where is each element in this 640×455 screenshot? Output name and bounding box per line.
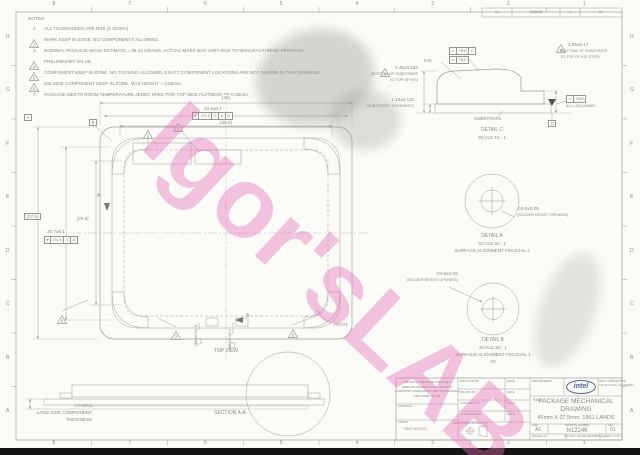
scale-value: SCALE: 2:1 [532,435,548,438]
zone-row: G [630,88,634,94]
zone-col: 5 [280,2,283,8]
note-text: PACKAGE MEETS ROOM TEMPERATURE JEDEC SPE… [44,92,249,97]
rev-value: 01 [610,428,616,434]
kiz-flag: 5 [288,325,298,334]
zone-row: F [630,142,633,148]
strip-number: N12246 [530,10,542,14]
fcf-detail-c-2: ▱TBD [449,56,469,64]
zone-col: 1 [583,441,586,447]
substrate-label: SUBSTRATE [474,116,501,121]
dim-substrate: 1.16±0.115 [391,97,414,102]
note-num: 7. [33,92,37,97]
note-text: ALL TOLERANCES ARE RSS (4 SIGMA). [44,26,130,31]
zone-col: 1 [583,2,586,8]
zone-row: B [6,356,9,362]
drawing-geometry [0,0,640,455]
projection-label: THIRD ANGLE PROJECTION [453,423,488,426]
fcf-detail-c-1: ▱TBDC [449,47,476,55]
lands-label: ALL LGA LANDS [566,104,595,108]
note-flag: 2 [29,35,39,44]
see-detail-b: SEE DETAIL B [195,325,199,346]
zone-col: 7 [128,2,131,8]
note-text: DIE SIDE COMPONENT KEEP IN ZONE. MAX HEI… [44,81,182,86]
section-arrow-label: A [246,314,249,320]
approval-date-label: DATE [507,391,515,394]
pin1-label: PIN #1 [334,322,348,327]
zone-col: 3 [431,2,434,8]
zone-col: 8 [53,2,56,8]
note-text: MARK KEEP IN ZONE. NO COMPONENTS ALLOWED… [44,37,159,42]
top-view-caption: TOP VIEW [214,349,238,355]
address-line: SANTA CLARA, CALIFORNIA [599,385,634,388]
zone-col: 2 [507,2,510,8]
zone-col: 7 [128,441,131,447]
zone-row: C [6,302,10,308]
detail-c-scale: SCALE 10 : 1 [478,135,506,140]
dim-substrate-note: (SUBSTRATE THICKNESS) [366,104,414,108]
sheet-value: SHEET 1 OF 1 [602,435,622,438]
intel-logo: intel [566,380,596,394]
approval-label: DRAWN BY [460,391,476,394]
section-callout: LAND SIDE COMPONENT [37,410,92,415]
dim-step: 2.66±0.17 [568,42,588,47]
detail-c-caption: DETAIL C [481,128,503,134]
zone-row: F [6,142,9,148]
ihs-label: IHS [424,58,432,63]
prelim-flag: 4 [556,40,566,49]
detail-b-qty: 2X [490,359,496,364]
size-value: A1 [535,428,541,434]
dim-ihs: 4.46±0.154 [395,65,418,70]
datum-a: A [24,114,32,121]
note-flag: 4 [29,57,39,66]
zone-col: 5 [280,441,283,447]
section-arrow-label: A [97,194,100,200]
section-callout: THICKNESS [66,417,92,422]
section-callout: 0.6 MAX [74,403,92,408]
dim-37-5: (37.5) [24,213,41,220]
dim-ihs-note: (BOTTOM OF SUBSTRATE [371,72,418,76]
drawing-sheet: Igor'sLAB 8 7 6 5 4 3 2 1 8 7 6 5 4 3 2 … [0,0,640,455]
strip-sheet: 1 [569,10,571,14]
dim-45: (45) [221,95,231,100]
zone-row: A [6,409,9,415]
see-detail-a: SEE DETAIL A [229,329,233,350]
dim-ihs-note: TO TOP OF IHS) [389,78,418,82]
zone-col: 8 [53,441,56,447]
section-caption: SECTION A-A [214,411,246,417]
dim-30-7: 30.7±0.1 [46,229,66,234]
fcf-height: ⌖∅0.5CA [44,236,78,244]
detail-b-note: SURFACE ALIGNMENT FIDUCIAL 1 [455,352,530,357]
approval-date-label: DATE [507,402,515,405]
finish-label: FINISH [398,421,408,424]
datum-b: B [89,119,97,126]
approval-label: APPROVED BY [460,413,482,416]
approval-label: DRAFTED BY [460,380,479,383]
zone-row: G [6,88,10,94]
note-num: 3. [33,48,37,53]
detail-a-scale: SCALE 50 : 1 [478,241,506,246]
approval-label: CHECKED BY [460,402,480,405]
zone-col: 2 [507,441,510,447]
zone-col: 3 [431,441,434,447]
no-scale-note: DO NOT SCALE DRAWING [564,435,602,438]
kiz-flag: 5 [173,119,183,128]
notes-title: NOTES: [28,16,45,21]
detail-a-dim-note: (SOLDER RESIST OPENING) [517,213,568,217]
detail-b-dim: ∅0.6±0.05 [436,271,458,276]
zone-col: 6 [204,2,207,8]
approval-date-label: DATE [507,413,515,416]
zone-row: E [630,195,633,201]
note-text: PRELIMINARY VALUE. [44,59,92,64]
zone-row: C [630,302,634,308]
drawing-title: DRAWING [560,406,591,413]
fcf-width: ⌖∅0.5CAB [192,112,233,120]
zone-row: E [6,195,9,201]
dim-38: (38.0) [219,120,233,125]
zone-row: H [630,35,634,41]
approval-date-label: DATE [507,380,515,383]
strip-size: A1 [495,10,499,14]
spec-note: PER ASME Y14.5M [414,395,440,398]
material-label: MATERIAL [398,405,413,408]
drawing-title: PACKAGE MECHANICAL [538,398,613,405]
detail-a-caption: DETAIL A [481,234,502,240]
note-text: NOMINAL PACKAGE MASS ESTIMATE = 36.14 GR… [44,48,304,53]
department-label: DEPARTMENT [532,380,552,383]
zone-col: 4 [356,441,359,447]
note-flag: 6 [29,79,39,88]
finish-value: SEE NOTES [404,427,427,432]
detail-a-note: SURFACE ALIGNMENT FIDUCIAL 2 [454,248,529,253]
zone-col: 6 [204,441,207,447]
kiz-flag: 2 [171,327,181,336]
note-text: COMPONENT KEEP IN ZONE. NO TOOLING ALLOW… [44,70,321,75]
dim-42-5: 42.5±0.1 [203,106,223,111]
dim-25-5: [25.5] [76,216,90,221]
dim-step-note: TO TOP OF IHS STEP) [560,55,600,59]
zone-row: H [6,35,10,41]
fcf-lands: ▱TBD [566,95,586,103]
zone-col: 4 [356,2,359,8]
dim-step-note: (BOTTOM OF SUBSTRATE [560,49,607,53]
zone-row: A [630,409,633,415]
kiz-flag: 2 [143,126,153,135]
strip-rev: 01 [599,10,603,14]
zone-row: D [630,249,634,255]
detail-b-dim-note: (SOLDER RESIST OPENING) [407,278,458,282]
note-num: 1. [33,26,37,31]
zone-row: B [630,356,633,362]
datum-c: C [548,120,556,127]
photo-edge [0,448,640,455]
detail-b-scale: SCALE 50 : 1 [479,345,507,350]
detail-b-caption: DETAIL B [482,338,504,344]
zone-row: D [6,249,10,255]
detail-a-dim: ∅0.5±0.05 [517,206,539,211]
kiz-flag: 6 [57,311,67,320]
note-flag: 5 [29,68,39,77]
drawing-subtitle: 45mm X 37.5mm, 1851 LANDS [537,415,614,421]
